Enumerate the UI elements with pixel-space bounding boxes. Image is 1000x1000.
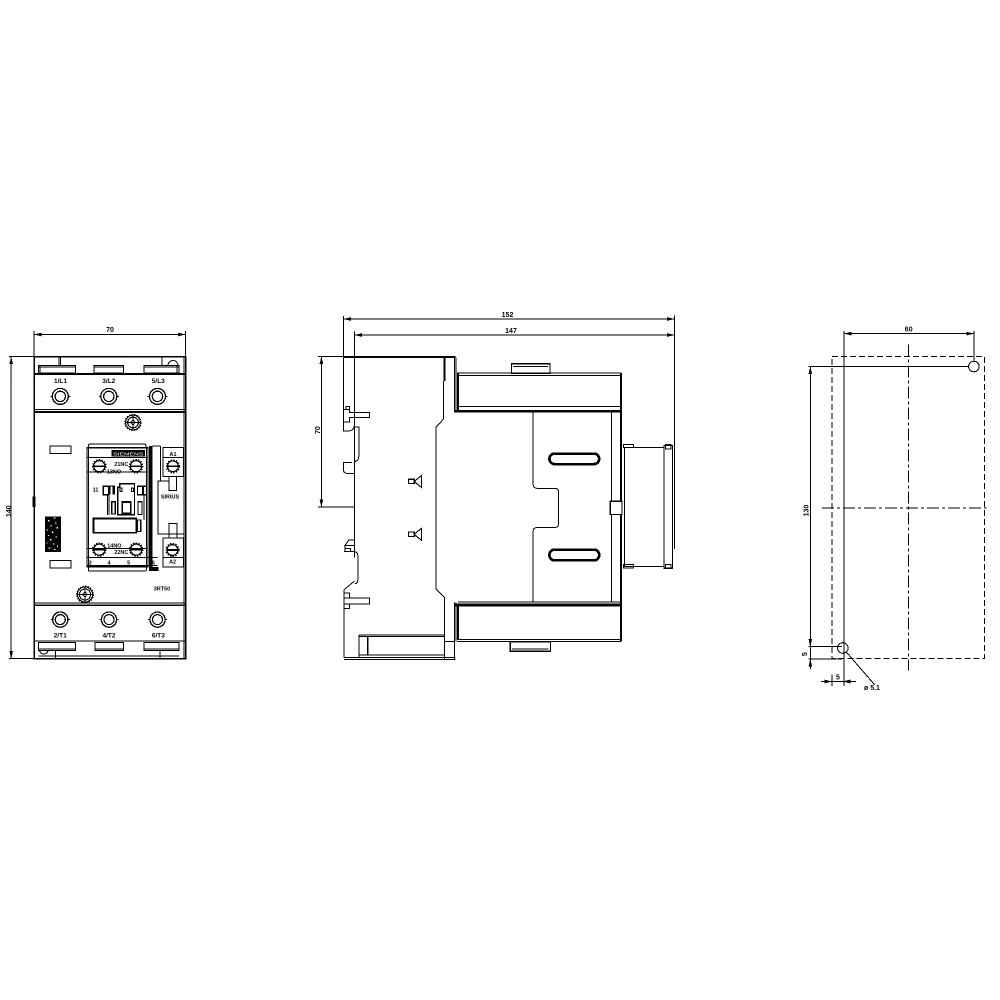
svg-text:5: 5 — [127, 560, 130, 566]
svg-text:70: 70 — [106, 327, 114, 334]
svg-text:3: 3 — [89, 560, 92, 566]
svg-text:140: 140 — [6, 505, 13, 517]
svg-text:5: 5 — [802, 652, 809, 656]
svg-text:13NO: 13NO — [107, 469, 122, 475]
svg-text:60: 60 — [905, 326, 913, 333]
svg-text:3RT50: 3RT50 — [154, 587, 171, 593]
svg-text:70: 70 — [315, 426, 322, 434]
svg-text:SIEMENS: SIEMENS — [113, 451, 143, 456]
svg-text:2/T1: 2/T1 — [54, 632, 67, 639]
svg-text:5: 5 — [836, 675, 840, 682]
svg-text:3/L2: 3/L2 — [102, 378, 115, 385]
svg-text:4/T2: 4/T2 — [102, 632, 115, 639]
svg-text:5/L3: 5/L3 — [152, 378, 165, 385]
svg-text:ø 5.1: ø 5.1 — [864, 685, 880, 692]
svg-text:152: 152 — [502, 312, 514, 319]
svg-text:22NC: 22NC — [114, 550, 128, 556]
svg-text:21NC: 21NC — [114, 462, 128, 468]
svg-text:1/L1: 1/L1 — [54, 378, 67, 385]
svg-text:130: 130 — [803, 505, 810, 517]
svg-text:14NO: 14NO — [107, 543, 122, 549]
svg-text:A2: A2 — [169, 560, 176, 566]
svg-text:6/T3: 6/T3 — [152, 632, 165, 639]
svg-text:147: 147 — [505, 328, 517, 335]
svg-text:A1: A1 — [169, 452, 176, 458]
svg-text:SIRIUS: SIRIUS — [161, 495, 180, 501]
svg-text:11: 11 — [93, 487, 99, 493]
